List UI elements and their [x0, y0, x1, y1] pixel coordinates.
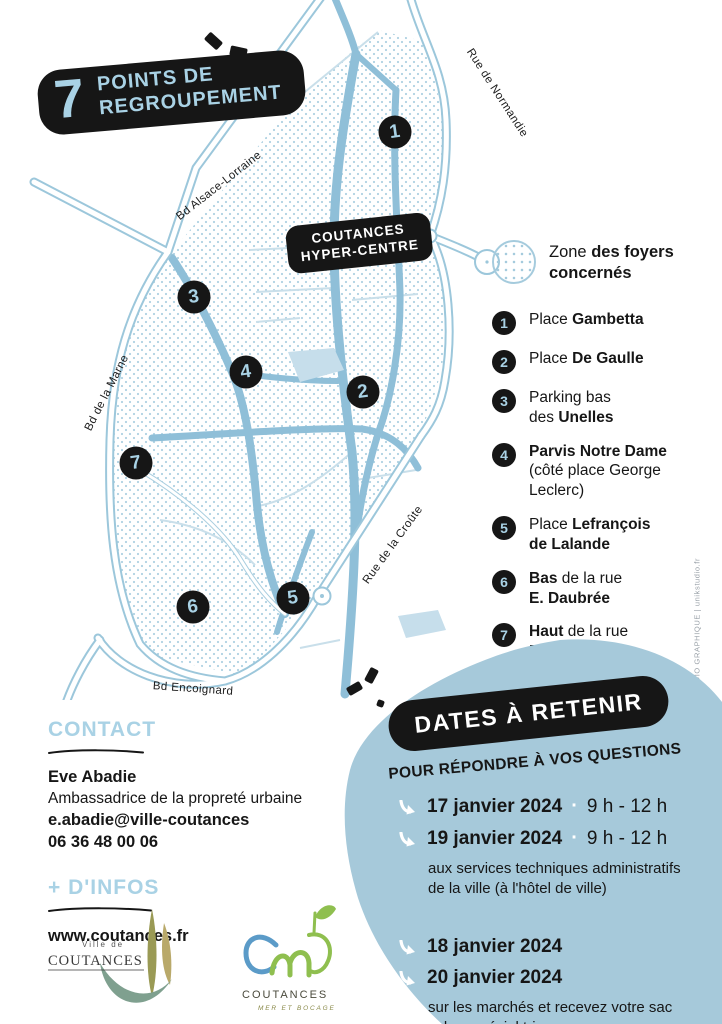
date-row-17: 17 janvier 2024 · 9 h - 12 h	[398, 795, 710, 818]
cmb-logo-tagline: MER ET BOCAGE	[258, 1005, 336, 1012]
map-marker-2: 2	[347, 376, 380, 409]
legend-item-6: 6 Bas de la rueE. Daubrée	[492, 569, 718, 609]
zone-label: Zone des foyersconcernés	[549, 240, 674, 283]
legend-num-4: 4	[492, 443, 516, 467]
dates-list: 17 janvier 2024 · 9 h - 12 h 19 janvier …	[398, 795, 710, 1024]
dates-note-2-line2: cabas spécial tri.	[428, 1019, 540, 1024]
legend-item-1: 1 Place Gambetta	[492, 310, 718, 335]
legend-num-1: 1	[492, 311, 516, 335]
map-marker-6: 6	[177, 591, 210, 624]
contact-name: Eve Abadie	[48, 768, 302, 787]
date-time: 9 h - 12 h	[587, 828, 667, 850]
dates-note-1-line2: de la ville (à l'hôtel de ville)	[428, 880, 607, 897]
map-marker-5: 5	[277, 582, 310, 615]
legend-item-4: 4 Parvis Notre Dame(côté place GeorgeLec…	[492, 442, 718, 501]
legend-item-3: 3 Parking basdes Unelles	[492, 388, 718, 428]
date-separator: ·	[571, 827, 578, 850]
date-value: 19 janvier 2024	[427, 828, 562, 850]
legend-text-5: Place Lefrançoisde Lalande	[529, 515, 650, 555]
map-marker-1: 1	[379, 116, 412, 149]
contact-heading: CONTACT	[48, 718, 302, 742]
date-row-19: 19 janvier 2024 · 9 h - 12 h	[398, 827, 710, 850]
legend-text-6: Bas de la rueE. Daubrée	[529, 569, 622, 609]
heading-underline	[48, 748, 144, 755]
partner-logos: Ville de COUTANCES COUTANCES MER ET BOCA…	[40, 893, 336, 1018]
contact-email: e.abadie@ville-coutances	[48, 811, 302, 830]
legend-text-1: Place Gambetta	[529, 310, 644, 330]
date-row-20: 20 janvier 2024	[398, 967, 710, 989]
title-number: 7	[52, 74, 86, 125]
legend-text-2: Place De Gaulle	[529, 349, 644, 369]
date-value: 17 janvier 2024	[427, 796, 562, 818]
legend-num-2: 2	[492, 350, 516, 374]
dates-badge-label: DATES À RETENIR	[413, 688, 644, 738]
arrow-icon	[398, 800, 418, 817]
legend-num-3: 3	[492, 389, 516, 413]
date-value: 18 janvier 2024	[427, 936, 562, 958]
map-marker-7: 7	[120, 447, 153, 480]
zone-dotted-icon	[492, 240, 536, 284]
date-time: 9 h - 12 h	[587, 796, 667, 818]
arrow-icon	[398, 971, 418, 988]
dates-note-1: aux services techniques administratifs d…	[428, 859, 710, 900]
date-separator: ·	[571, 795, 578, 818]
flyer-page: Bd Alsace-Lorraine Rue de Normandie Bd d…	[0, 0, 722, 1024]
ville-de-coutances-logo: Ville de COUTANCES	[40, 901, 190, 1011]
legend-num-6: 6	[492, 570, 516, 594]
ville-logo-top: Ville de	[82, 940, 124, 949]
date-value: 20 janvier 2024	[427, 967, 562, 989]
coutances-mer-et-bocage-logo: COUTANCES MER ET BOCAGE	[236, 893, 336, 1018]
contact-role: Ambassadrice de la propreté urbaine	[48, 790, 302, 808]
legend-text-3: Parking basdes Unelles	[529, 388, 613, 428]
dates-note-2-line1: sur les marchés et recevez votre sac	[428, 999, 672, 1016]
map-legend: Zone des foyersconcernés 1 Place Gambett…	[492, 240, 718, 676]
dates-note-2: sur les marchés et recevez votre sac cab…	[428, 998, 710, 1024]
map-marker-4: 4	[230, 356, 263, 389]
dates-note-1-line1: aux services techniques administratifs	[428, 860, 681, 877]
map-marker-3: 3	[178, 281, 211, 314]
legend-item-5: 5 Place Lefrançoisde Lalande	[492, 515, 718, 555]
arrow-icon	[398, 832, 418, 849]
legend-num-5: 5	[492, 516, 516, 540]
contact-phone: 06 36 48 00 06	[48, 833, 302, 852]
legend-zone-row: Zone des foyersconcernés	[492, 240, 718, 284]
ville-logo-name: COUTANCES	[48, 953, 143, 969]
legend-text-4: Parvis Notre Dame(côté place GeorgeLecle…	[529, 442, 667, 501]
date-row-18: 18 janvier 2024	[398, 936, 710, 958]
cmb-logo-name: COUTANCES	[242, 989, 328, 1001]
legend-item-2: 2 Place De Gaulle	[492, 349, 718, 374]
arrow-icon	[398, 940, 418, 957]
